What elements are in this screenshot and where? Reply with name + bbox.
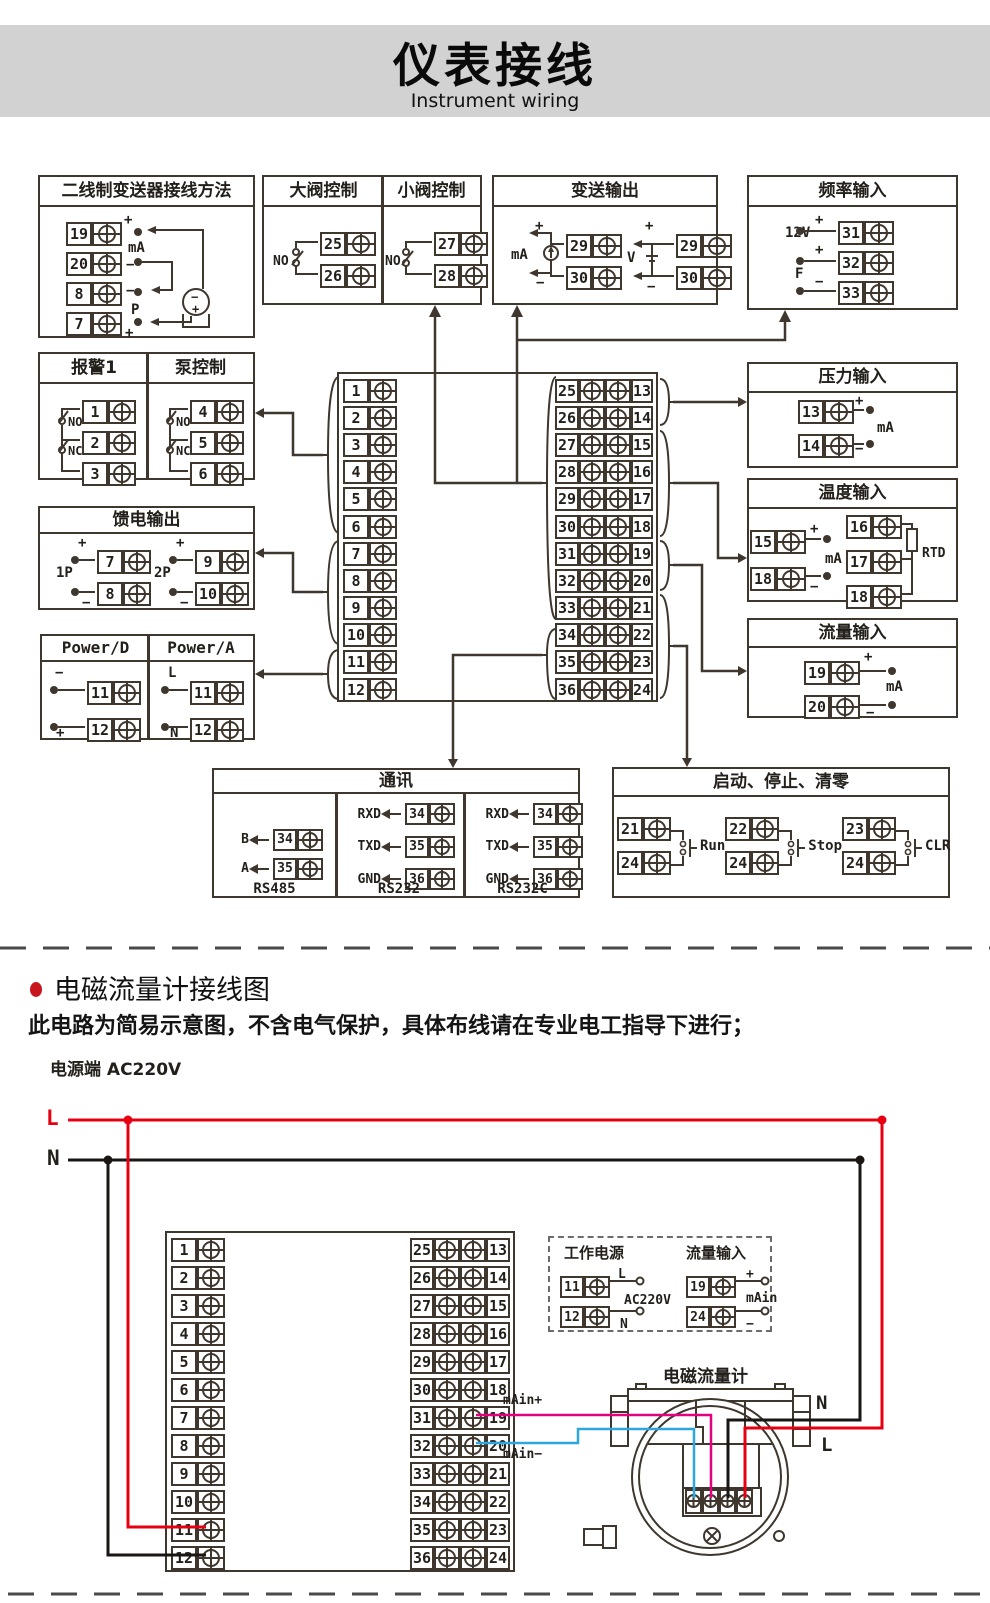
switch-icon — [671, 817, 699, 875]
terminal: 10 — [343, 623, 397, 647]
terminal: 12 — [560, 1306, 610, 1328]
screw-terminal-icon — [592, 234, 622, 258]
f-label: F — [795, 267, 803, 281]
screw-terminal-icon — [197, 1294, 225, 1318]
brace-15-18 — [660, 431, 673, 536]
big-valve-title: 大阀控制 — [264, 177, 383, 205]
terminal: 6 — [190, 462, 244, 486]
left-arrow-icon — [512, 813, 529, 815]
screw-terminal-icon — [460, 1294, 486, 1318]
terminal: 5 — [171, 1350, 225, 1374]
terminal: 2 — [343, 406, 397, 430]
terminal: 7 — [66, 312, 122, 336]
screw-terminal-icon — [369, 487, 397, 511]
ma-label: mA — [886, 680, 903, 694]
terminal: 2 — [171, 1266, 225, 1290]
terminal-pair: 2816 — [555, 460, 653, 484]
screw-terminal-icon — [369, 379, 397, 403]
connector-feed — [258, 553, 323, 592]
pressure-input-box: 压力输入 1314 + mA − — [747, 362, 958, 468]
screw-terminal-icon — [460, 1266, 486, 1290]
polarity-label: + — [810, 522, 818, 536]
terminal: 9 — [343, 596, 397, 620]
screw-terminal-icon — [460, 1350, 486, 1374]
terminal: 14 — [798, 434, 854, 458]
terminal-pair: 3624 — [410, 1546, 510, 1570]
polarity-label: − — [82, 596, 90, 610]
2p-label: 2P — [154, 566, 171, 580]
terminal: 11 — [343, 650, 397, 674]
screw-terminal-icon — [434, 1406, 460, 1430]
screw-terminal-icon — [579, 569, 605, 593]
terminal: 30 — [676, 266, 732, 290]
terminal-pair: 3119 — [555, 542, 653, 566]
power-box: Power/D Power/A 1112 1112 − + L N — [40, 634, 255, 740]
divider — [147, 636, 150, 738]
terminal: 4 — [343, 460, 397, 484]
screw-terminal-icon — [579, 596, 605, 620]
screw-terminal-icon — [434, 1462, 460, 1486]
terminal-pair: 2614 — [410, 1266, 510, 1290]
terminal: 1 — [171, 1238, 225, 1262]
terminal-pair: 2715 — [555, 433, 653, 457]
screw-terminal-icon — [824, 400, 854, 424]
screw-terminal-icon — [751, 851, 779, 875]
screw-terminal-icon — [702, 234, 732, 258]
flowmeter-icon — [584, 1384, 810, 1555]
ma-label: mA — [877, 421, 894, 435]
screw-terminal-icon — [197, 1238, 225, 1262]
screw-terminal-icon — [369, 650, 397, 674]
screw-terminal-icon — [108, 462, 136, 486]
control-group: 23 24 CLR — [842, 813, 950, 879]
left-arrow-icon — [384, 878, 401, 880]
screw-terminal-icon — [868, 851, 896, 875]
terminal: 8 — [343, 569, 397, 593]
screw-terminal-icon — [429, 803, 455, 825]
start-stop-clear-title: 启动、停止、清零 — [614, 769, 948, 797]
terminal: 29 — [566, 234, 622, 258]
meter-terminal-label: L2 — [722, 1516, 742, 1526]
rtd-label: RTD — [922, 547, 945, 560]
terminal: 19 — [686, 1276, 736, 1298]
terminal: 5 — [343, 487, 397, 511]
screw-terminal-icon — [197, 1546, 225, 1570]
screw-terminal-icon — [830, 695, 860, 719]
terminal: 20 — [804, 695, 860, 719]
terminal: 13 — [798, 400, 854, 424]
terminal: 5 — [190, 431, 244, 455]
terminal-pair: 2715 — [410, 1294, 510, 1318]
alarm-pump-box: 报警1 泵控制 123 456 NO NC NO NC — [38, 352, 255, 480]
terminal: 24 — [725, 851, 779, 875]
screw-terminal-icon — [872, 585, 902, 609]
section-title: 电磁流量计接线图 — [54, 968, 270, 1007]
terminal: 7 — [97, 550, 151, 574]
ma-label: mA — [511, 248, 528, 262]
main-terminal-block: 123456789101112 251326142715281629173018… — [337, 372, 658, 702]
polarity-label: + — [746, 1268, 754, 1281]
main-label: mAin — [746, 1292, 777, 1305]
screw-terminal-icon — [434, 1322, 460, 1346]
terminal-pair: 3422 — [555, 623, 653, 647]
screw-terminal-icon — [579, 379, 605, 403]
screw-terminal-icon — [751, 817, 779, 841]
polarity-label: + — [535, 219, 543, 233]
no-label: NO — [273, 255, 289, 268]
screw-terminal-icon — [197, 1462, 225, 1486]
terminal: 19 — [804, 661, 860, 685]
terminal: 10 — [195, 582, 249, 606]
transmit-output-box: 变送输出 2930 2930 + mA − + V − — [492, 175, 718, 305]
polarity-label: + — [815, 243, 823, 257]
screw-terminal-icon — [864, 251, 894, 275]
screw-terminal-icon — [579, 678, 605, 702]
left-arrow-icon — [512, 878, 529, 880]
meter-l-label: L — [821, 1436, 832, 1455]
comm-row: RXD34 — [475, 803, 583, 825]
polarity-label: − — [855, 442, 863, 456]
polarity-label: + — [176, 536, 184, 550]
instrument-wiring-page: 仪表接线 Instrument wiring 二线制变送器接线方法 192087… — [0, 0, 990, 1603]
terminal: 11 — [171, 1518, 225, 1542]
polarity-label: + — [864, 650, 872, 664]
start-stop-clear-box: 启动、停止、清零 21 24 Run 22 24 — [612, 767, 950, 898]
polarity-label: + — [78, 536, 86, 550]
polarity-label: − — [746, 1318, 754, 1331]
screw-terminal-icon — [297, 858, 323, 880]
pump-title: 泵控制 — [148, 354, 253, 382]
terminal-pair: 3321 — [410, 1462, 510, 1486]
terminal: 15 — [750, 530, 806, 554]
screw-terminal-icon — [216, 400, 244, 424]
screw-terminal-icon — [605, 515, 631, 539]
polarity-label: − — [810, 580, 818, 594]
polarity-label: + — [815, 213, 823, 227]
main-minus-label: mAin− — [503, 1448, 542, 1461]
brace-13-14 — [660, 379, 673, 425]
connector-alarm — [258, 413, 323, 455]
power-d-title: Power/D — [42, 636, 149, 660]
flowmeter-title: 电磁流量计 — [663, 1369, 748, 1386]
bullet-icon — [30, 982, 42, 997]
left-arrow-icon — [512, 846, 529, 848]
communication-title: 通讯 — [214, 770, 578, 794]
page-title: 仪表接线 — [0, 27, 990, 96]
comm-row: TXD35 — [345, 836, 455, 858]
screw-terminal-icon — [123, 550, 151, 574]
n-label: N — [170, 726, 178, 740]
terminal: 4 — [171, 1322, 225, 1346]
screw-terminal-icon — [460, 264, 488, 288]
terminal-pair: 2513 — [555, 379, 653, 403]
screw-terminal-icon — [346, 232, 376, 256]
polarity-label: + — [124, 213, 132, 227]
feed-output-box: 馈电输出 78 910 + 1P − + 2P − — [38, 506, 255, 610]
connector-frequency — [517, 322, 785, 340]
screw-terminal-icon — [605, 460, 631, 484]
terminal: 24 — [617, 851, 671, 875]
polarity-label: − — [536, 276, 544, 290]
no-label: NO — [68, 416, 82, 428]
screw-terminal-icon — [872, 515, 902, 539]
ma-label: mA — [825, 552, 842, 566]
terminal: 11 — [190, 681, 244, 705]
small-valve-title: 小阀控制 — [383, 177, 480, 205]
terminal: 12 — [343, 678, 397, 702]
terminal-pair: 3018 — [410, 1378, 510, 1402]
terminal: 9 — [171, 1462, 225, 1486]
terminal: 12 — [171, 1546, 225, 1570]
terminal: 20 — [66, 252, 122, 276]
screw-terminal-icon — [369, 542, 397, 566]
screw-terminal-icon — [197, 1322, 225, 1346]
screw-terminal-icon — [369, 596, 397, 620]
screw-terminal-icon — [605, 678, 631, 702]
screw-terminal-icon — [92, 222, 122, 246]
terminal: 4 — [190, 400, 244, 424]
terminal: 12 — [87, 718, 141, 742]
terminal: 16 — [846, 515, 902, 539]
screw-terminal-icon — [605, 569, 631, 593]
terminal-pair: 2917 — [555, 487, 653, 511]
screw-terminal-icon — [113, 718, 141, 742]
control-group: 21 24 Run — [617, 813, 725, 879]
screw-terminal-icon — [92, 252, 122, 276]
screw-terminal-icon — [92, 312, 122, 336]
polarity-label: − — [126, 284, 134, 298]
terminal: 32 — [838, 251, 894, 275]
screw-terminal-icon — [864, 281, 894, 305]
terminal: 12 — [190, 718, 244, 742]
screw-terminal-icon — [460, 1322, 486, 1346]
terminal: 9 — [195, 550, 249, 574]
switch-icon — [896, 817, 924, 875]
screw-terminal-icon — [460, 1434, 486, 1458]
power-source-label: 电源端 AC220V — [50, 1062, 181, 1079]
screw-terminal-icon — [710, 1276, 736, 1298]
v-label: V — [627, 251, 635, 265]
terminal-pair: 3119 — [410, 1406, 510, 1430]
control-group: 22 24 Stop — [725, 813, 842, 879]
n-label: N — [620, 1318, 628, 1331]
screw-terminal-icon — [824, 434, 854, 458]
lower-terminal-block: 123456789101112 251326142715281629173018… — [165, 1231, 515, 1572]
terminal-pair: 3523 — [555, 650, 653, 674]
screw-terminal-icon — [460, 1546, 486, 1570]
screw-terminal-icon — [830, 661, 860, 685]
ma-label: mA — [128, 241, 145, 255]
terminal: 8 — [66, 282, 122, 306]
feed-output-title: 馈电输出 — [40, 508, 253, 534]
polarity-label: − — [55, 666, 63, 680]
screw-terminal-icon — [557, 803, 583, 825]
terminal: 18 — [846, 585, 902, 609]
terminal-pair: 3523 — [410, 1518, 510, 1542]
terminal-pair: 2917 — [410, 1350, 510, 1374]
terminal: 27 — [434, 232, 488, 256]
screw-terminal-icon — [579, 460, 605, 484]
flow-input-box: 流量输入 1920 + mA − — [747, 618, 958, 718]
terminal: 7 — [343, 542, 397, 566]
line-n-label: N — [47, 1148, 60, 1169]
screw-terminal-icon — [434, 1434, 460, 1458]
screw-terminal-icon — [710, 1306, 736, 1328]
screw-terminal-icon — [460, 1406, 486, 1430]
terminal: 8 — [171, 1434, 225, 1458]
screw-terminal-icon — [605, 433, 631, 457]
connector-startstop — [673, 646, 687, 762]
comm-row: RXD34 — [345, 803, 455, 825]
divider — [463, 794, 466, 896]
left-arrow-icon — [384, 846, 401, 848]
frequency-input-box: 频率输入 313233 12V + + F − — [747, 175, 958, 310]
screw-terminal-icon — [584, 1306, 610, 1328]
terminal: 11 — [560, 1276, 610, 1298]
screw-terminal-icon — [605, 379, 631, 403]
terminal: 7 — [171, 1406, 225, 1430]
terminal-pair: 2513 — [410, 1238, 510, 1262]
screw-terminal-icon — [108, 400, 136, 424]
terminal: 19 — [66, 222, 122, 246]
screw-terminal-icon — [369, 406, 397, 430]
polarity-label: − — [180, 596, 188, 610]
power-a-title: Power/A — [149, 636, 253, 660]
p-label: P — [131, 303, 139, 317]
two-wire-title: 二线制变送器接线方法 — [40, 177, 253, 207]
flow-input-title: 流量输入 — [749, 620, 956, 648]
screw-terminal-icon — [369, 623, 397, 647]
screw-terminal-icon — [434, 1350, 460, 1374]
terminal: 28 — [434, 264, 488, 288]
terminal: 3 — [343, 433, 397, 457]
screw-terminal-icon — [864, 221, 894, 245]
screw-terminal-icon — [579, 433, 605, 457]
screw-terminal-icon — [643, 817, 671, 841]
polarity-label: − — [815, 275, 823, 289]
page-header: 仪表接线 Instrument wiring — [0, 25, 990, 117]
terminal-pair: 2816 — [410, 1322, 510, 1346]
terminal: 29 — [676, 234, 732, 258]
terminal: 26 — [320, 264, 376, 288]
frequency-input-title: 频率输入 — [749, 177, 956, 207]
connector-temperature — [673, 483, 740, 558]
screw-terminal-icon — [460, 1490, 486, 1514]
screw-terminal-icon — [429, 836, 455, 858]
valve-control-box: 大阀控制 小阀控制 2526 2728 NO NO — [262, 175, 482, 305]
brace-19-20 — [660, 541, 673, 590]
polarity-label: + — [125, 326, 133, 340]
screw-terminal-icon — [592, 266, 622, 290]
nc-label: NC — [176, 445, 190, 457]
detail-dashed-box: 工作电源 流量输入 1112 1924 L AC220V N + mAin − — [548, 1236, 772, 1332]
screw-terminal-icon — [221, 582, 249, 606]
divider — [335, 794, 338, 896]
screw-terminal-icon — [434, 1518, 460, 1542]
communication-box: 通讯 B34A35 RXD34TXD35GND36 RXD34TXD35GND3… — [212, 768, 580, 898]
terminal-pair: 3321 — [555, 596, 653, 620]
polarity-label: − — [126, 258, 134, 272]
l-label: L — [618, 1268, 626, 1281]
terminal: 1 — [343, 379, 397, 403]
meter-terminal-label: I+ — [702, 1516, 722, 1526]
rs485-caption: RS485 — [214, 882, 335, 896]
terminal: 6 — [171, 1378, 225, 1402]
screw-terminal-icon — [702, 266, 732, 290]
terminal: 10 — [171, 1490, 225, 1514]
screw-terminal-icon — [584, 1276, 610, 1298]
screw-terminal-icon — [197, 1434, 225, 1458]
screw-terminal-icon — [460, 1238, 486, 1262]
1p-label: 1P — [56, 566, 73, 580]
screw-terminal-icon — [460, 1462, 486, 1486]
no-label: NO — [176, 416, 190, 428]
temperature-input-title: 温度输入 — [749, 480, 956, 509]
terminal: 24 — [686, 1306, 736, 1328]
screw-terminal-icon — [776, 530, 806, 554]
left-arrow-icon — [384, 813, 401, 815]
screw-terminal-icon — [216, 718, 244, 742]
terminal: 17 — [846, 550, 902, 574]
screw-terminal-icon — [369, 460, 397, 484]
line-l-label: L — [46, 1108, 59, 1129]
screw-terminal-icon — [92, 282, 122, 306]
left-arrow-icon — [252, 868, 269, 870]
screw-terminal-icon — [197, 1266, 225, 1290]
screw-terminal-icon — [113, 681, 141, 705]
divider — [146, 354, 149, 478]
screw-terminal-icon — [197, 1490, 225, 1514]
section-note: 此电路为简易示意图，不含电气保护，具体布线请在专业电工指导下进行； — [28, 1008, 754, 1040]
terminal: 1 — [82, 400, 136, 424]
terminal: 25 — [320, 232, 376, 256]
terminal: 3 — [171, 1294, 225, 1318]
ac220v-label: AC220V — [624, 1294, 671, 1307]
comm-row: TXD35 — [475, 836, 583, 858]
screw-terminal-icon — [216, 681, 244, 705]
screw-terminal-icon — [123, 582, 151, 606]
screw-terminal-icon — [579, 623, 605, 647]
alarm-title: 报警1 — [40, 354, 148, 382]
screw-terminal-icon — [460, 1518, 486, 1542]
page-subtitle: Instrument wiring — [0, 90, 990, 112]
screw-terminal-icon — [579, 542, 605, 566]
screw-terminal-icon — [776, 567, 806, 591]
screw-terminal-icon — [434, 1546, 460, 1570]
screw-terminal-icon — [605, 623, 631, 647]
rs232-caption: RS232 — [335, 882, 463, 896]
screw-terminal-icon — [369, 433, 397, 457]
switch-icon — [779, 817, 807, 875]
screw-terminal-icon — [346, 264, 376, 288]
screw-terminal-icon — [369, 569, 397, 593]
terminal: 31 — [838, 221, 894, 245]
main-plus-label: mAin+ — [503, 1394, 542, 1407]
screw-terminal-icon — [605, 596, 631, 620]
rs232c-caption: RS232C — [463, 882, 582, 896]
terminal-pair: 3624 — [555, 678, 653, 702]
terminal: 11 — [87, 681, 141, 705]
terminal: 21 — [617, 817, 671, 841]
12v-label: 12V — [785, 226, 810, 240]
l-label: L — [168, 666, 176, 680]
screw-terminal-icon — [197, 1350, 225, 1374]
connector-flow — [673, 565, 740, 671]
terminal: 22 — [725, 817, 779, 841]
screw-terminal-icon — [460, 232, 488, 256]
screw-terminal-icon — [605, 487, 631, 511]
screw-terminal-icon — [579, 406, 605, 430]
